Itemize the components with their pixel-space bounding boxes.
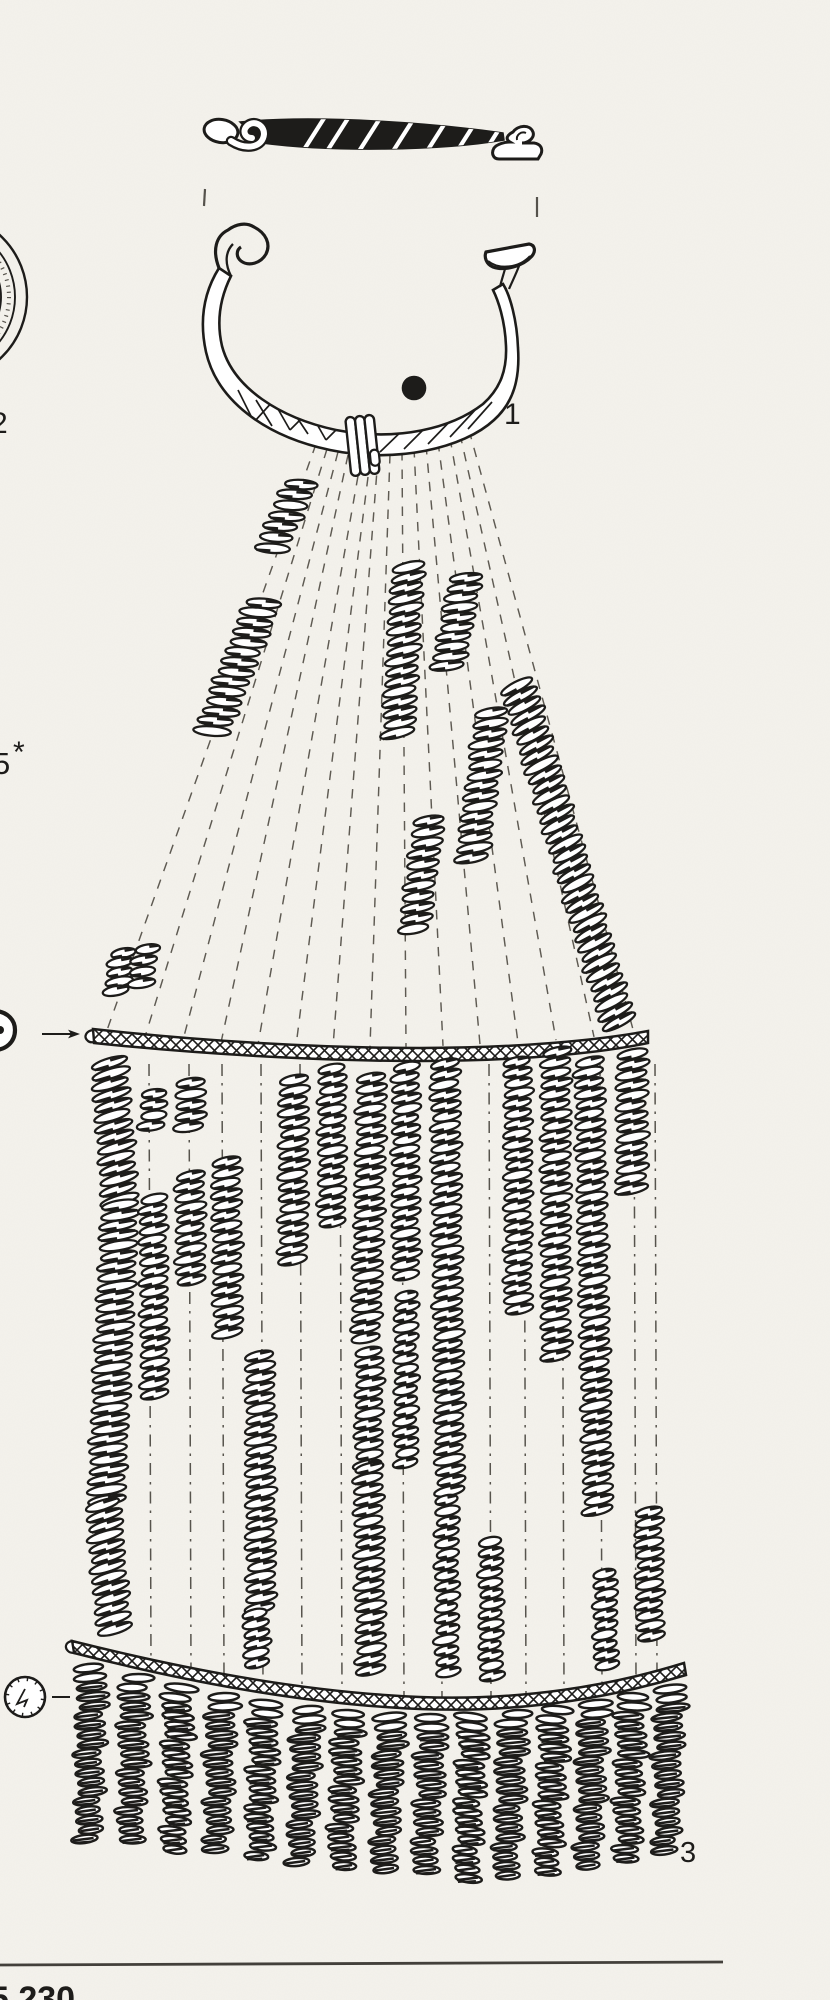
svg-text:3: 3 — [680, 1837, 696, 1869]
svg-text:2: 2 — [0, 407, 8, 440]
svg-text:5 230: 5 230 — [0, 1980, 75, 2000]
svg-text:*: * — [13, 736, 25, 769]
svg-text:1: 1 — [504, 398, 521, 431]
svg-text:5: 5 — [0, 746, 10, 781]
